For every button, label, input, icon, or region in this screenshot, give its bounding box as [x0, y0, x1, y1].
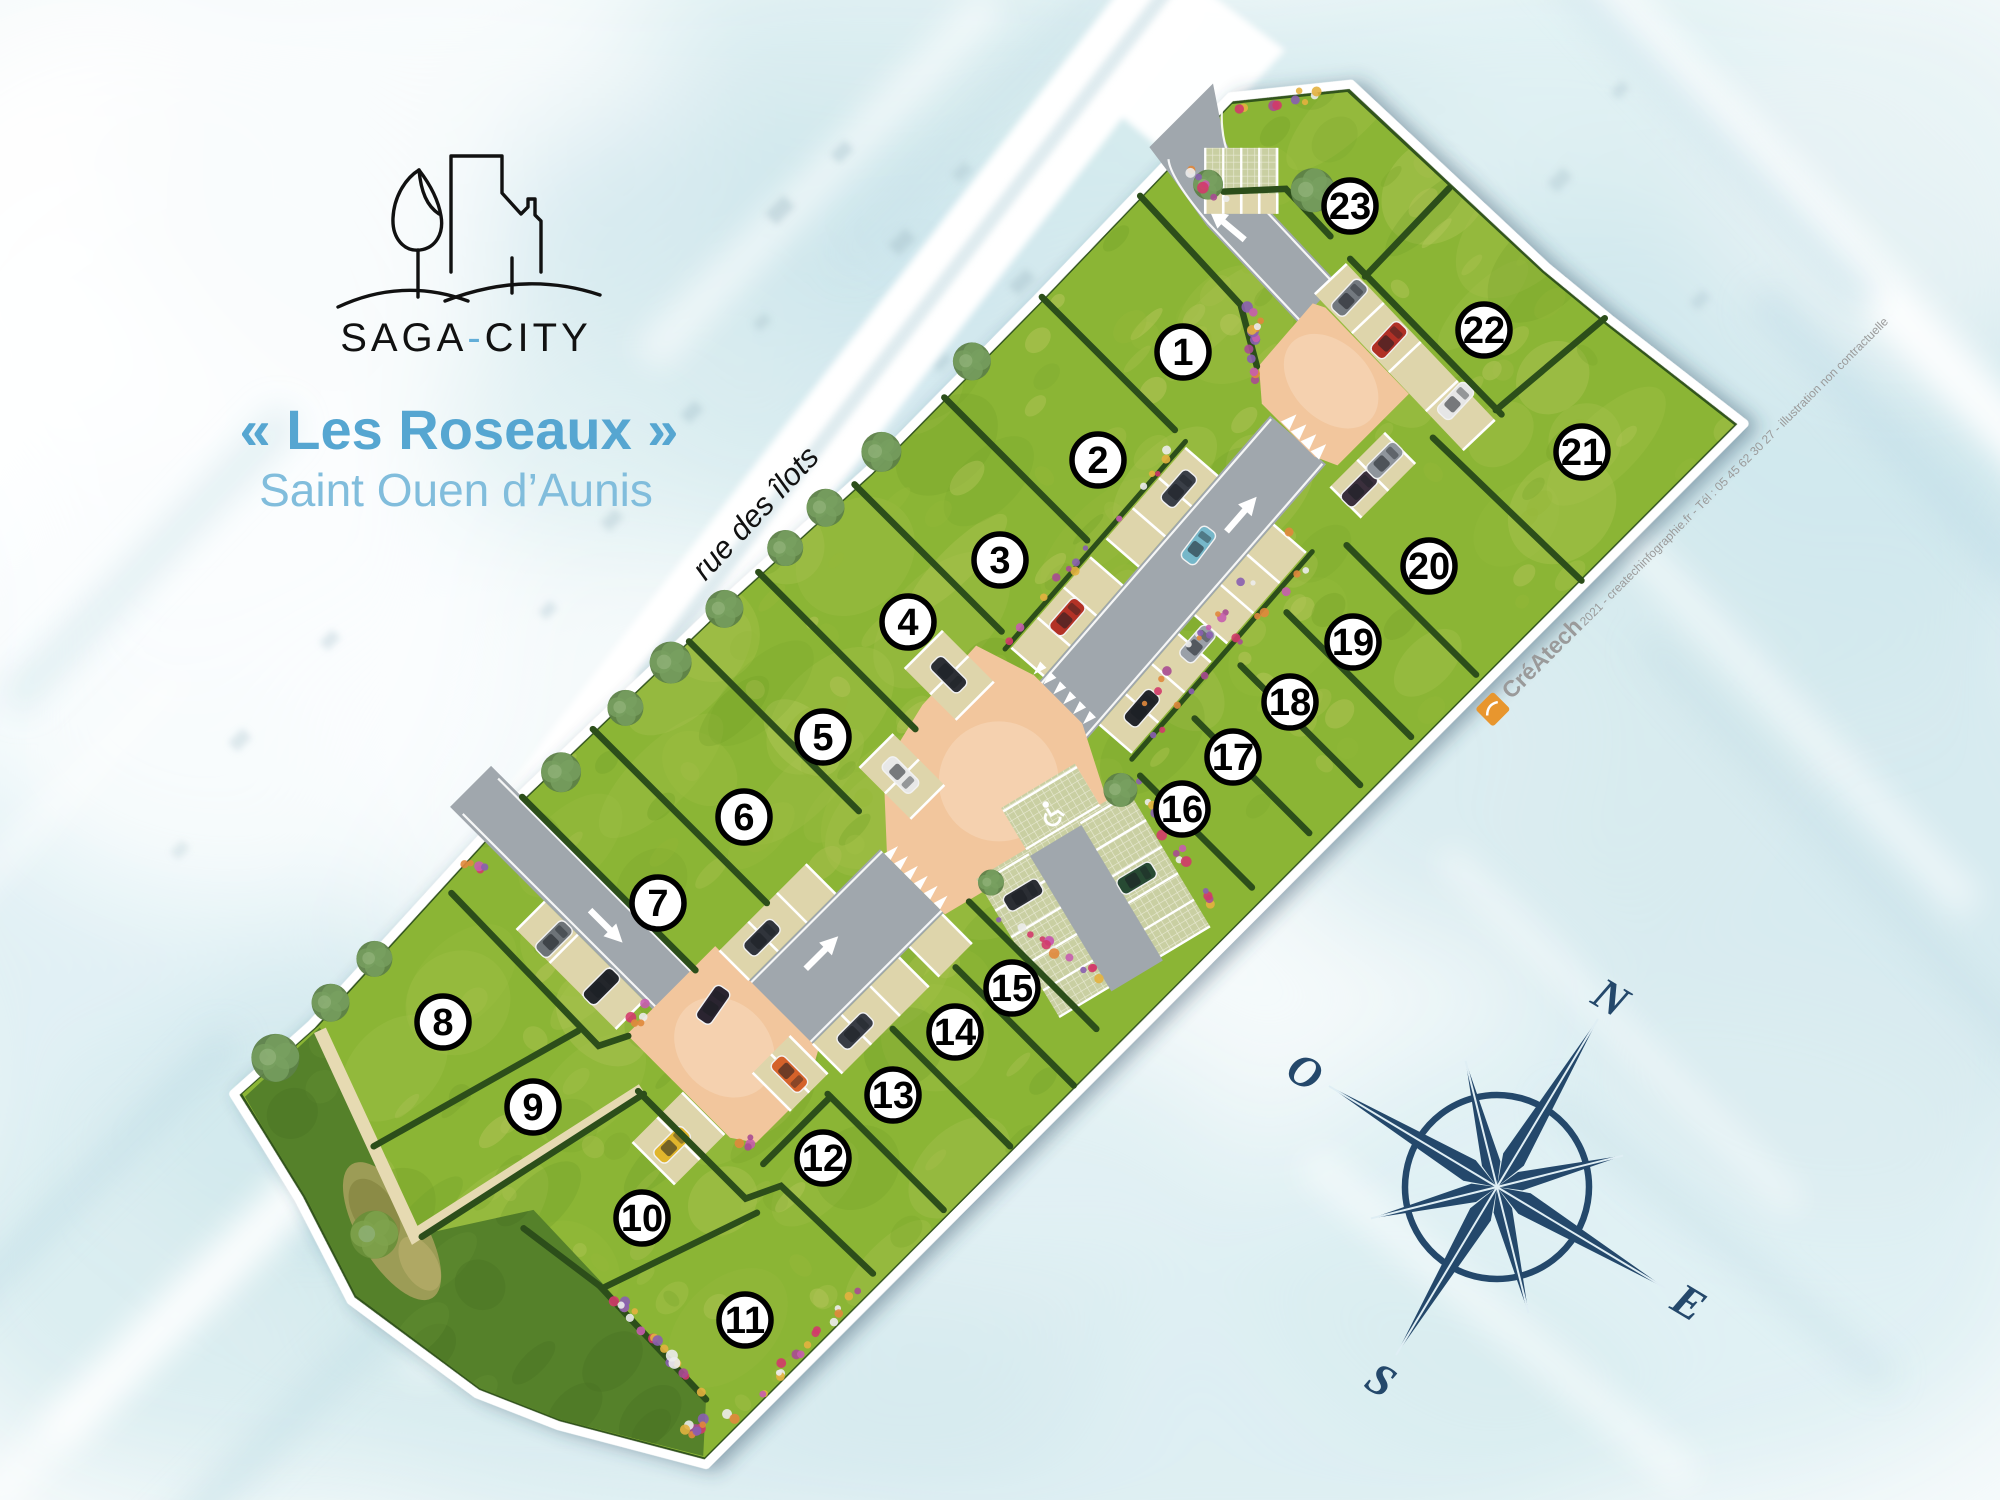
svg-text:13: 13 — [872, 1075, 914, 1117]
svg-text:14: 14 — [934, 1012, 976, 1054]
svg-text:7: 7 — [647, 883, 668, 925]
svg-text:2: 2 — [1087, 440, 1108, 482]
svg-text:Saint Ouen d’Aunis: Saint Ouen d’Aunis — [259, 464, 653, 516]
svg-text:20: 20 — [1408, 546, 1450, 588]
svg-text:SAGA-CITY: SAGA-CITY — [340, 316, 592, 360]
svg-text:17: 17 — [1212, 737, 1254, 779]
svg-text:6: 6 — [733, 797, 754, 839]
svg-text:10: 10 — [621, 1198, 663, 1240]
svg-text:12: 12 — [802, 1138, 844, 1180]
svg-text:8: 8 — [432, 1002, 453, 1044]
svg-text:18: 18 — [1269, 682, 1311, 724]
svg-text:16: 16 — [1161, 789, 1203, 831]
svg-text:3: 3 — [989, 540, 1010, 582]
svg-text:15: 15 — [991, 968, 1033, 1010]
svg-text:23: 23 — [1329, 186, 1371, 228]
svg-text:11: 11 — [725, 1300, 765, 1342]
svg-text:4: 4 — [897, 602, 918, 644]
svg-text:21: 21 — [1561, 432, 1603, 474]
svg-text:22: 22 — [1463, 310, 1505, 352]
svg-text:9: 9 — [522, 1087, 543, 1129]
svg-text:1: 1 — [1172, 332, 1193, 374]
svg-text:« Les Roseaux »: « Les Roseaux » — [240, 398, 679, 461]
svg-text:19: 19 — [1332, 622, 1374, 664]
svg-text:5: 5 — [812, 717, 833, 759]
